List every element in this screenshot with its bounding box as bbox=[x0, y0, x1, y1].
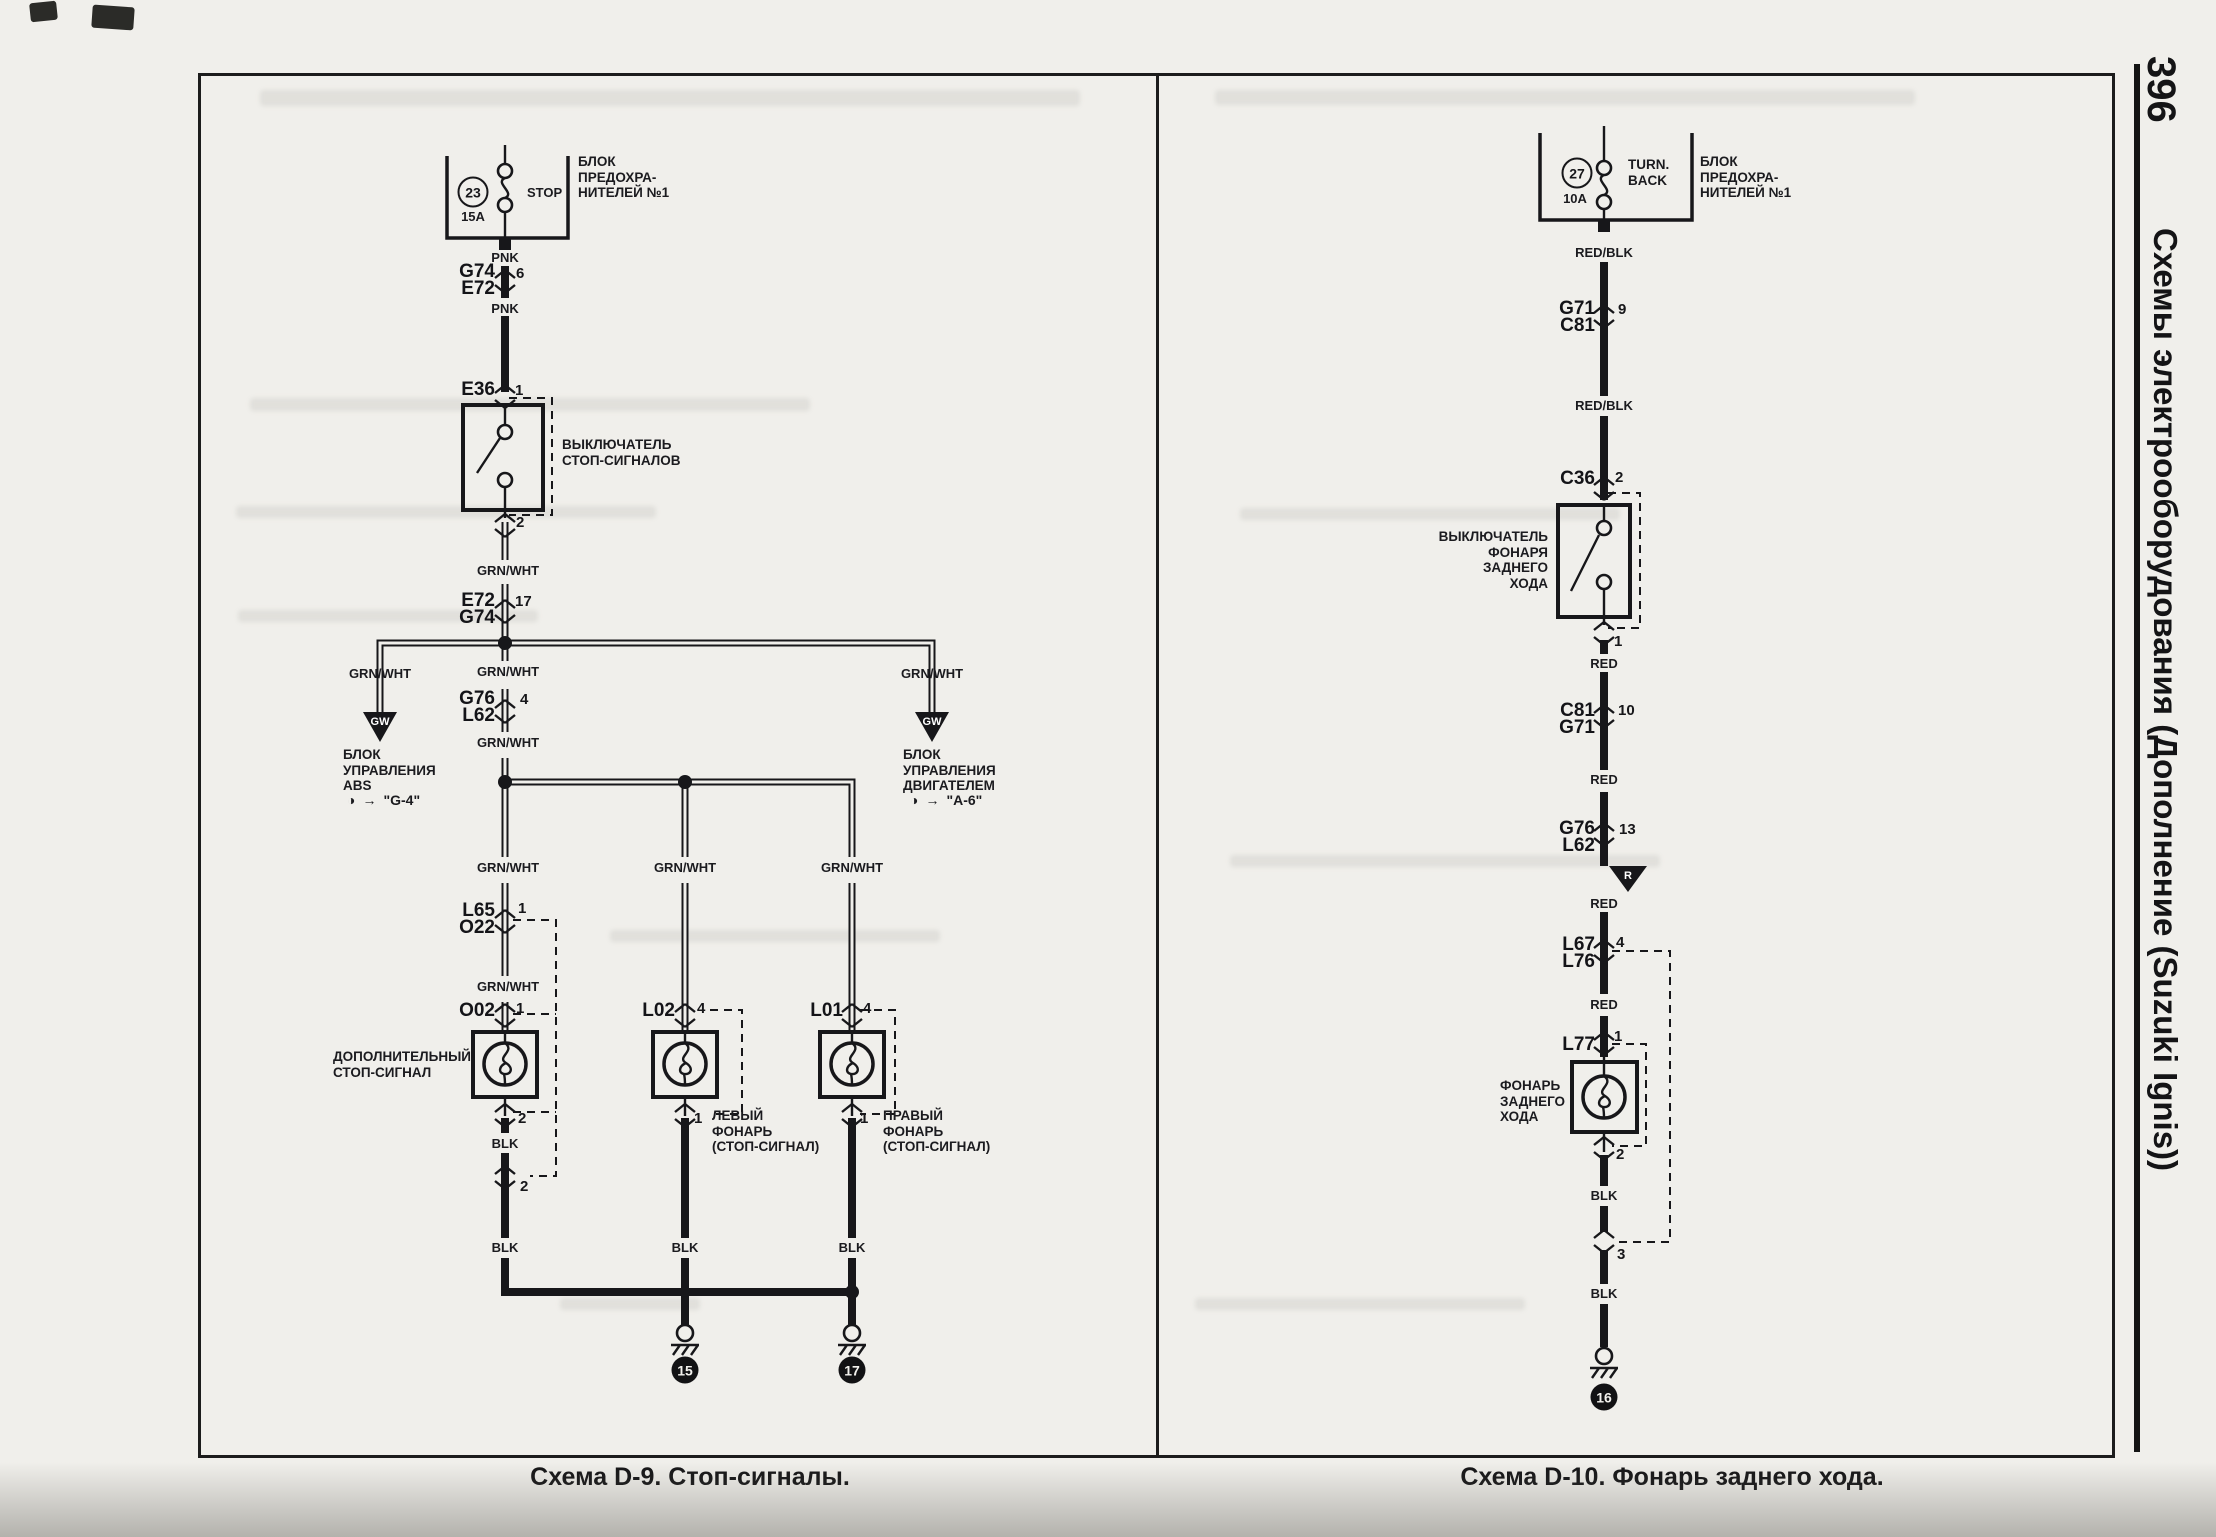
connector-label: L77 bbox=[1527, 1036, 1595, 1053]
arrow-gw-icon: GW bbox=[915, 712, 949, 742]
fuse-element-icon bbox=[1601, 175, 1607, 195]
pin-number: 1 bbox=[515, 382, 523, 399]
scanned-manual-page: GW GW bbox=[0, 0, 2216, 1537]
ground-icon bbox=[671, 1325, 699, 1355]
switch-lever-icon bbox=[1571, 535, 1599, 591]
reverse-lamp-label: ФОНАРЬЗАДНЕГОХОДА bbox=[1500, 1078, 1565, 1125]
connector-label: E72G74 bbox=[427, 592, 495, 626]
pin-number: 2 bbox=[520, 1178, 528, 1195]
fuse-terminal-icon bbox=[498, 164, 512, 178]
wire-color-label: PNK bbox=[491, 301, 518, 316]
ref-target: "A-6" bbox=[946, 793, 982, 809]
wire-color-label: BLK bbox=[839, 1240, 866, 1255]
wire-color-label: GRN/WHT bbox=[477, 735, 539, 750]
fuse-amps: 10A bbox=[1563, 191, 1587, 206]
ref-target: "G-4" bbox=[383, 793, 420, 809]
pin-number: 10 bbox=[1618, 702, 1635, 719]
ground-number-badge: 15 bbox=[672, 1357, 699, 1384]
bulb-icon bbox=[1583, 1076, 1625, 1118]
ground-icon bbox=[1590, 1348, 1618, 1378]
connector-label: E36 bbox=[427, 381, 495, 398]
fuse-name: TURN.BACK bbox=[1628, 157, 1669, 188]
svg-text:GW: GW bbox=[923, 716, 943, 728]
pin-number: 2 bbox=[518, 1110, 526, 1127]
wire-color-label: GRN/WHT bbox=[477, 563, 539, 578]
fuse-block-label: БЛОКПРЕДОХРА-НИТЕЛЕЙ №1 bbox=[1700, 154, 1791, 201]
sidebar-title: Схемы электрооборудования (Дополнение (S… bbox=[2146, 228, 2184, 1171]
ground-icon bbox=[838, 1325, 866, 1355]
wire-color-label: RED/BLK bbox=[1575, 398, 1633, 413]
pin-number: 4 bbox=[697, 1000, 705, 1017]
wire-color-label: GRN/WHT bbox=[901, 666, 963, 681]
wire-color-label: GRN/WHT bbox=[821, 860, 883, 875]
pin-number: 4 bbox=[1616, 934, 1624, 951]
scan-shadow bbox=[0, 1462, 2216, 1537]
abs-reference: ◑ → "G-4" bbox=[347, 793, 420, 809]
page-number: 396 bbox=[2138, 56, 2183, 123]
pin-number: 17 bbox=[515, 593, 532, 610]
pin-number: 1 bbox=[516, 1000, 524, 1017]
reverse-switch-label: ВЫКЛЮЧАТЕЛЬФОНАРЯ ЗАДНЕГОХОДА bbox=[1410, 529, 1548, 591]
pin-number: 2 bbox=[1615, 469, 1623, 486]
wire-color-label: BLK bbox=[1591, 1188, 1618, 1203]
junction-dot bbox=[678, 775, 692, 789]
pin-number: 2 bbox=[1616, 1146, 1624, 1163]
pin-number: 3 bbox=[1617, 1246, 1625, 1263]
fuse-number-badge: 27 bbox=[1562, 158, 1593, 189]
wire-color-label: RED bbox=[1590, 656, 1617, 671]
connector-label: C36 bbox=[1527, 470, 1595, 487]
ecm-reference: ◑ → "A-6" bbox=[910, 793, 982, 809]
ecm-unit-label: БЛОКУПРАВЛЕНИЯДВИГАТЕЛЕМ bbox=[903, 747, 996, 794]
ground-number-badge: 17 bbox=[839, 1357, 866, 1384]
wiring-diagram: GW GW bbox=[0, 0, 2216, 1537]
fuse-terminal-icon bbox=[1597, 195, 1611, 209]
wire-color-label: GRN/WHT bbox=[477, 664, 539, 679]
connector-label: C81G71 bbox=[1527, 702, 1595, 736]
connector-label: L67L76 bbox=[1527, 936, 1595, 970]
ground-number-badge: 16 bbox=[1591, 1384, 1618, 1411]
left-lamp-label: ЛЕВЫЙФОНАРЬ(СТОП-СИГНАЛ) bbox=[712, 1108, 819, 1155]
wire-color-label: GRN/WHT bbox=[349, 666, 411, 681]
svg-text:GW: GW bbox=[371, 716, 391, 728]
wire-color-label: RED/BLK bbox=[1575, 245, 1633, 260]
pin-number: 4 bbox=[520, 691, 528, 708]
stop-switch-box bbox=[463, 405, 543, 510]
connector-label: O02 bbox=[427, 1002, 495, 1019]
junction-dot bbox=[845, 1285, 859, 1299]
pin-number: 6 bbox=[516, 265, 524, 282]
fuse-element-icon bbox=[502, 178, 508, 198]
connector-label: L02 bbox=[607, 1002, 675, 1019]
bulb-icon bbox=[484, 1043, 526, 1085]
ref-arrow-icon: → bbox=[925, 793, 939, 809]
wire-color-label: BLK bbox=[1591, 1286, 1618, 1301]
connector-mark-icon bbox=[1594, 1230, 1614, 1253]
junction-dot bbox=[498, 636, 512, 650]
pin-number: 1 bbox=[518, 900, 526, 917]
fuse-number-badge: 23 bbox=[458, 177, 489, 208]
pin-number: 2 bbox=[516, 514, 524, 531]
wire-color-label: GRN/WHT bbox=[654, 860, 716, 875]
pin-number: 1 bbox=[1614, 1028, 1622, 1045]
connector-label: L65O22 bbox=[427, 902, 495, 936]
switch-lever-icon bbox=[477, 438, 500, 473]
wire-color-label: GRN/WHT bbox=[477, 860, 539, 875]
stop-switch-label: ВЫКЛЮЧАТЕЛЬСТОП-СИГНАЛОВ bbox=[562, 437, 681, 468]
connector-label: G76L62 bbox=[1527, 820, 1595, 854]
wire-color-label: BLK bbox=[492, 1240, 519, 1255]
pin-number: 1 bbox=[860, 1110, 868, 1127]
wire-color-label: GRN/WHT bbox=[477, 979, 539, 994]
junction-dot bbox=[498, 775, 512, 789]
fuse-amps: 15A bbox=[461, 209, 485, 224]
fuse-terminal-icon bbox=[1597, 161, 1611, 175]
see-icon: ◑ bbox=[910, 793, 918, 809]
fuse-block-label: БЛОКПРЕДОХРА-НИТЕЛЕЙ №1 bbox=[578, 154, 669, 201]
pin-number: 13 bbox=[1619, 821, 1636, 838]
bulb-icon bbox=[831, 1043, 873, 1085]
connector-label: G76L62 bbox=[427, 690, 495, 724]
pin-number: 1 bbox=[1614, 633, 1622, 650]
bulb-icon bbox=[664, 1043, 706, 1085]
wire-color-label: BLK bbox=[492, 1136, 519, 1151]
abs-unit-label: БЛОКУПРАВЛЕНИЯABS bbox=[343, 747, 436, 794]
schematic-d9: GW GW bbox=[363, 145, 949, 1355]
connector-label: G71C81 bbox=[1527, 300, 1595, 334]
fuse-name: STOP bbox=[527, 185, 562, 200]
fuse-terminal-icon bbox=[498, 198, 512, 212]
wire-color-label: RED bbox=[1590, 772, 1617, 787]
right-lamp-label: ПРАВЫЙФОНАРЬ(СТОП-СИГНАЛ) bbox=[883, 1108, 990, 1155]
pin-number: 9 bbox=[1618, 301, 1626, 318]
wire-color-label: BLK bbox=[672, 1240, 699, 1255]
svg-text:R: R bbox=[1624, 870, 1632, 882]
arrow-r-icon: R bbox=[1609, 866, 1647, 892]
wire-color-label: RED bbox=[1590, 997, 1617, 1012]
connector-label: G74E72 bbox=[427, 263, 495, 297]
see-icon: ◑ bbox=[347, 793, 355, 809]
pin-number: 4 bbox=[863, 1000, 871, 1017]
wire-color-label: RED bbox=[1590, 896, 1617, 911]
aux-stop-lamp-label: ДОПОЛНИТЕЛЬНЫЙСТОП-СИГНАЛ bbox=[333, 1049, 471, 1080]
sidebar-rule bbox=[2134, 64, 2140, 1452]
wire-color-label: PNK bbox=[491, 250, 518, 265]
arrow-gw-icon: GW bbox=[363, 712, 397, 742]
ref-arrow-icon: → bbox=[362, 793, 376, 809]
reverse-switch-box bbox=[1558, 505, 1630, 617]
connector-label: L01 bbox=[775, 1002, 843, 1019]
pin-number: 1 bbox=[694, 1110, 702, 1127]
